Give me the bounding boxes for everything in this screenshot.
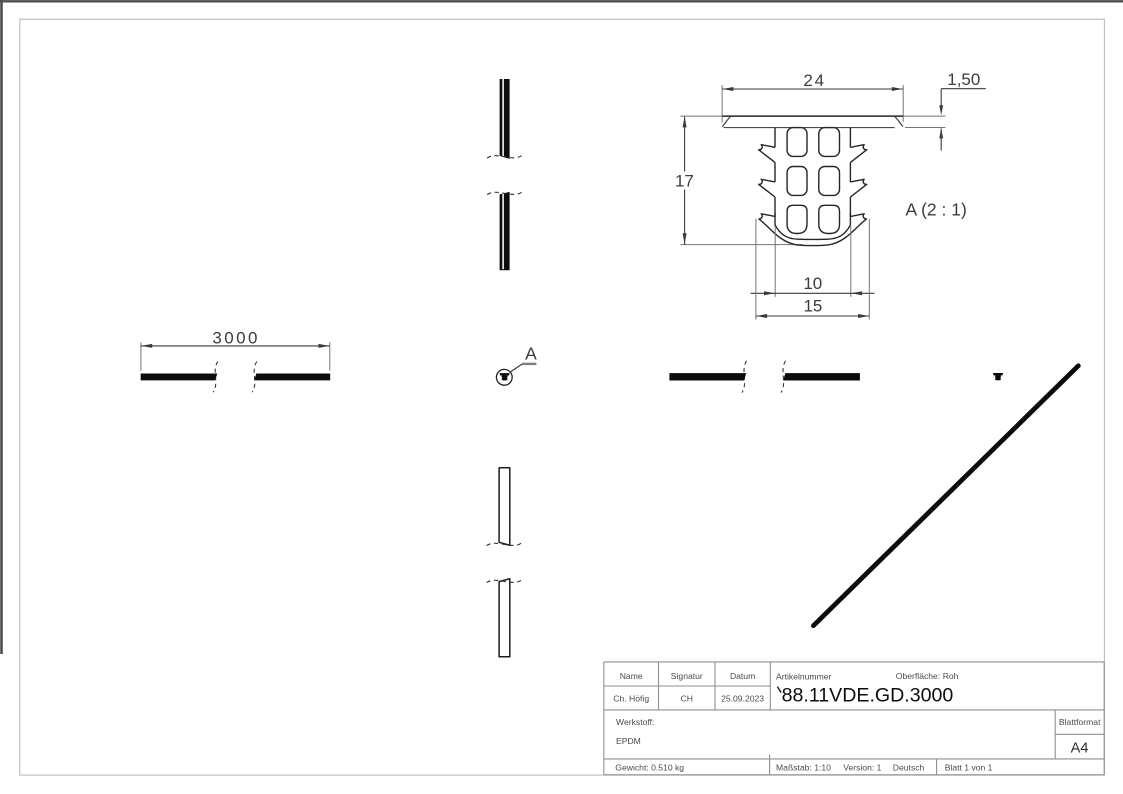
svg-text:Roh: Roh <box>943 671 959 681</box>
svg-text:Artikelnummer: Artikelnummer <box>776 671 832 681</box>
svg-text:17: 17 <box>675 171 694 190</box>
svg-text:Ch. Höfig: Ch. Höfig <box>613 694 649 704</box>
svg-text:A4: A4 <box>1071 740 1089 756</box>
svg-text:Oberfläche:: Oberfläche: <box>896 671 940 681</box>
svg-text:A (2 : 1): A (2 : 1) <box>906 200 967 220</box>
svg-text:Werkstoff:: Werkstoff: <box>616 717 654 727</box>
svg-text:Signatur: Signatur <box>671 671 703 681</box>
svg-text:Blattformat: Blattformat <box>1059 717 1101 727</box>
svg-text:25.09.2023: 25.09.2023 <box>721 694 764 704</box>
svg-text:10: 10 <box>803 274 822 293</box>
svg-text:A: A <box>525 344 537 364</box>
svg-text:88.11VDE.GD.3000: 88.11VDE.GD.3000 <box>782 685 954 707</box>
svg-text:Blatt 1 von 1: Blatt 1 von 1 <box>945 762 993 772</box>
svg-text:3000: 3000 <box>212 328 259 347</box>
svg-text:1,50: 1,50 <box>947 70 980 89</box>
svg-text:24: 24 <box>803 71 826 90</box>
svg-text:Gewicht: 0.510 kg: Gewicht: 0.510 kg <box>615 762 684 772</box>
svg-text:CH: CH <box>681 694 693 704</box>
svg-text:Deutsch: Deutsch <box>893 762 925 772</box>
svg-text:Version: 1: Version: 1 <box>843 762 881 772</box>
svg-text:Maßstab: 1:10: Maßstab: 1:10 <box>776 762 831 772</box>
svg-text:Datum: Datum <box>730 671 755 681</box>
svg-text:EPDM: EPDM <box>616 736 641 746</box>
svg-text:15: 15 <box>803 296 822 315</box>
svg-text:Name: Name <box>620 671 643 681</box>
